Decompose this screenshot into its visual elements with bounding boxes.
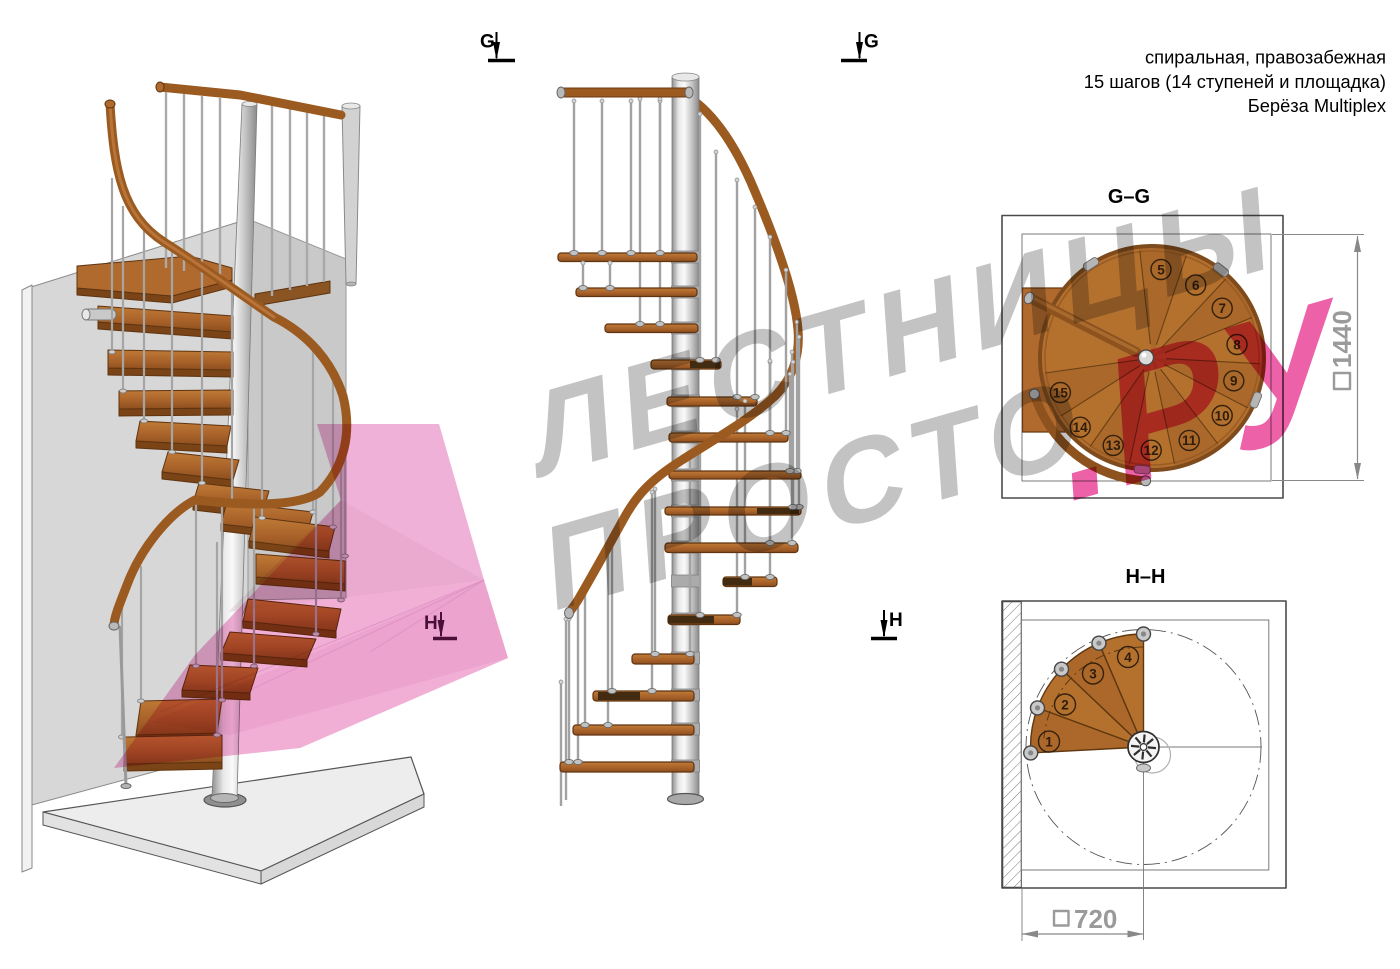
svg-text:Берёза Multiplex: Берёза Multiplex xyxy=(1248,95,1386,116)
svg-text:H: H xyxy=(889,610,903,631)
svg-text:G: G xyxy=(864,32,879,53)
svg-text:2: 2 xyxy=(1061,697,1069,712)
svg-text:4: 4 xyxy=(1124,650,1132,665)
svg-text:1: 1 xyxy=(1045,734,1053,749)
svg-text:спиральная, правозабежная: спиральная, правозабежная xyxy=(1145,47,1386,68)
svg-text:H–H: H–H xyxy=(1125,566,1165,588)
svg-text:15 шагов (14 ступеней и площад: 15 шагов (14 ступеней и площадка) xyxy=(1084,71,1386,92)
svg-text:720: 720 xyxy=(1074,904,1117,934)
svg-text:G: G xyxy=(480,32,495,53)
svg-text:3: 3 xyxy=(1089,666,1097,681)
svg-text:H: H xyxy=(424,613,438,634)
